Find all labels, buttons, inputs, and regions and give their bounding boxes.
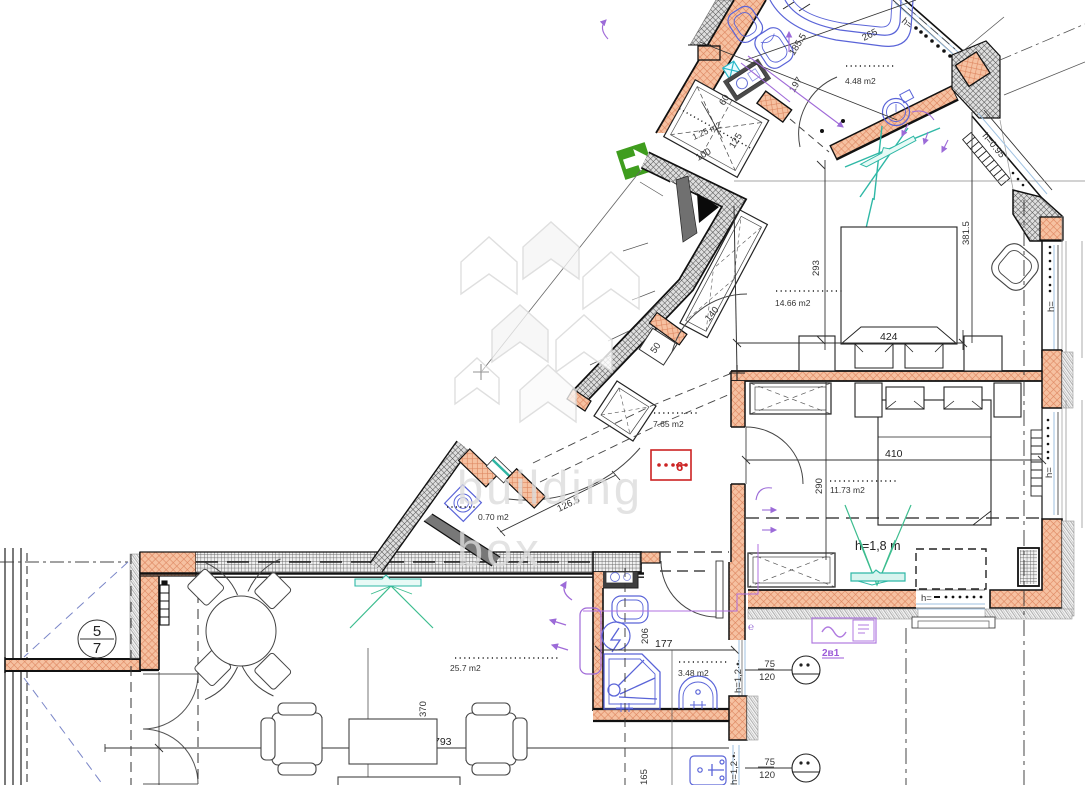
svg-text:370: 370 <box>418 701 429 717</box>
svg-text:11.73 m2: 11.73 m2 <box>830 485 865 495</box>
svg-text:410: 410 <box>885 448 903 460</box>
svg-text:381.5: 381.5 <box>961 221 972 245</box>
svg-text:h=: h= <box>1046 301 1057 312</box>
svg-text:290: 290 <box>814 478 825 494</box>
svg-text:7: 7 <box>93 640 101 657</box>
svg-text:206: 206 <box>640 628 651 644</box>
svg-text:7.65 m2: 7.65 m2 <box>653 419 684 429</box>
svg-text:75: 75 <box>764 659 775 670</box>
svg-text:h=1,2·•·: h=1,2·•· <box>733 659 744 693</box>
svg-text:box: box <box>457 523 542 576</box>
svg-text:424: 424 <box>880 331 898 343</box>
svg-text:h=: h= <box>1044 467 1055 478</box>
svg-text:3.48 m2: 3.48 m2 <box>678 668 709 678</box>
svg-text:4.48 m2: 4.48 m2 <box>845 76 876 86</box>
svg-text:h=: h= <box>921 593 932 604</box>
svg-text:165: 165 <box>639 769 650 785</box>
svg-text:building: building <box>457 461 643 514</box>
svg-text:75: 75 <box>764 757 775 768</box>
svg-text:2в1: 2в1 <box>822 648 840 659</box>
svg-text:℮: ℮ <box>748 622 754 633</box>
svg-text:14.66 m2: 14.66 m2 <box>775 298 811 308</box>
svg-text:120: 120 <box>759 672 775 683</box>
svg-text:h=1,2·•·: h=1,2·•· <box>729 751 740 785</box>
svg-text:5: 5 <box>93 623 101 640</box>
svg-text:177: 177 <box>655 638 673 650</box>
svg-text:120: 120 <box>759 770 775 781</box>
svg-text:25.7 m2: 25.7 m2 <box>450 663 481 673</box>
svg-text:293: 293 <box>811 260 822 276</box>
svg-text:6: 6 <box>676 459 683 474</box>
